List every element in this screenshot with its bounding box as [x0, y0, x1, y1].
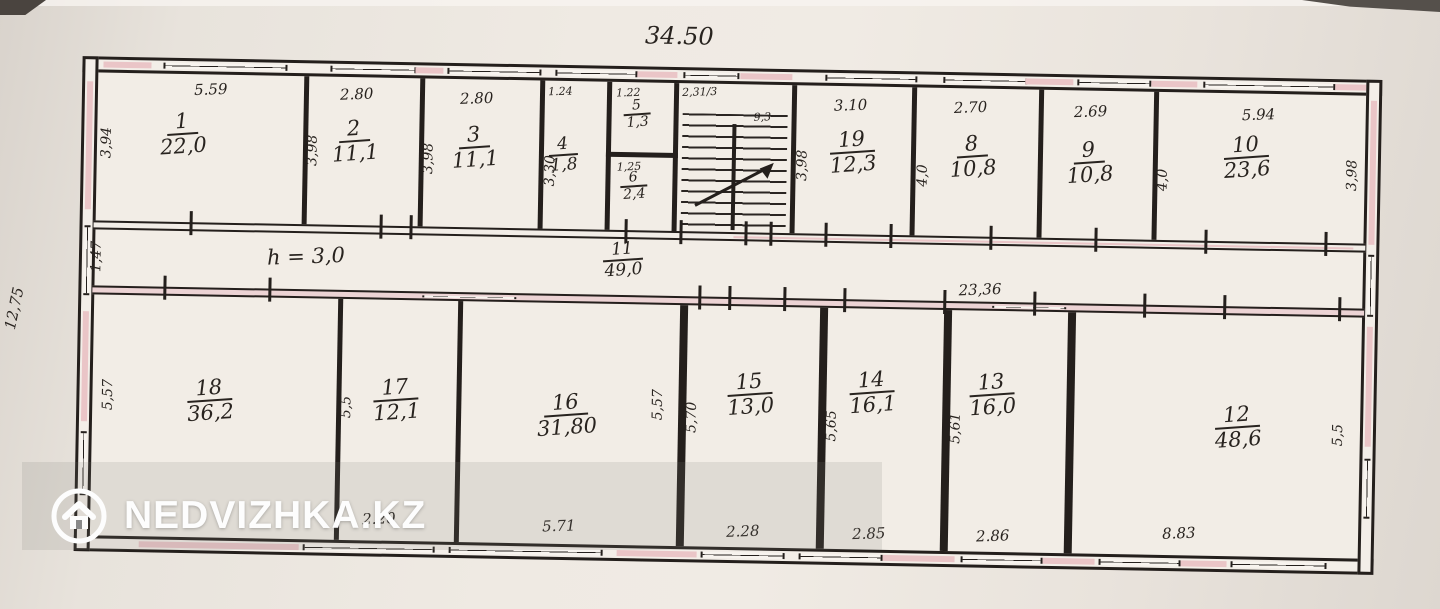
width-dim: 1.24 — [548, 84, 573, 98]
wall-segment — [1180, 560, 1226, 567]
ceiling-height-note: h = 3,0 — [267, 243, 346, 270]
door-tick — [1223, 295, 1226, 319]
scanned-floorplan-photo: 34.50 12,75 — [0, 0, 1440, 609]
wall-segment — [617, 550, 697, 557]
width-dim: 2.69 — [1074, 102, 1108, 121]
window-marker — [825, 75, 917, 83]
door-tick — [679, 220, 682, 244]
side-dim: 3,98 — [283, 142, 343, 159]
window-marker — [447, 68, 541, 76]
room-15-label: 15 13,0 — [725, 369, 775, 420]
width-dim: 1.22 — [616, 86, 641, 100]
room-18-label: 18 36,2 — [185, 375, 235, 426]
wall-segment — [637, 71, 677, 78]
side-dim: 3,98 — [1323, 167, 1383, 184]
room-16-label: 16 31,80 — [535, 389, 598, 441]
side-dim: 5,5 — [1308, 427, 1368, 444]
stair-area-note: 9,3 — [753, 110, 771, 124]
door-tick — [824, 223, 827, 247]
wall-segment — [1043, 558, 1095, 565]
side-dim: 5,65 — [802, 417, 862, 434]
width-dim: 3.10 — [834, 96, 868, 115]
door-tick — [189, 211, 192, 235]
room-8-label: 8 10,8 — [947, 131, 997, 182]
side-dim: 5,5 — [316, 398, 376, 415]
side-dim: 4,0 — [892, 167, 952, 184]
window-marker — [555, 70, 637, 78]
window-marker — [330, 66, 416, 74]
room-17-label: 17 12,1 — [371, 374, 421, 425]
stair-width-dim: 2,31/3 — [682, 85, 718, 99]
door-tick — [409, 215, 412, 239]
width-dim: 5.59 — [194, 80, 228, 99]
window-marker — [943, 77, 1027, 85]
house-icon — [50, 487, 108, 545]
corridor-right-dim: 23,36 — [958, 280, 1002, 299]
door-tick — [163, 276, 166, 300]
room-9-label: 9 10,8 — [1064, 137, 1114, 188]
watermark-text: NEDVIZHKA.KZ — [124, 494, 426, 538]
window-marker — [1098, 559, 1180, 567]
window-marker — [799, 553, 883, 561]
watermark: NEDVIZHKA.KZ — [50, 487, 426, 545]
door-tick — [1338, 297, 1341, 321]
photo-corner-artifact — [0, 0, 46, 15]
window-marker — [961, 556, 1043, 564]
window-marker — [1363, 459, 1370, 519]
window-marker — [163, 63, 287, 71]
side-dim: 3,98 — [399, 150, 459, 167]
width-dim: 8.83 — [1162, 524, 1196, 543]
door-tick — [1094, 228, 1097, 252]
door-tick — [783, 287, 786, 311]
room-12-label: 12 48,6 — [1212, 402, 1262, 453]
door-tick — [769, 222, 772, 246]
side-dim: 5,57 — [78, 386, 138, 403]
side-dim: 3,94 — [77, 134, 137, 151]
door-tick — [843, 288, 846, 312]
window-marker — [683, 72, 739, 79]
window-marker — [701, 552, 785, 560]
wall-segment — [81, 311, 89, 421]
room-10-label: 10 23,6 — [1221, 132, 1271, 183]
photo-edge — [0, 0, 1440, 6]
door-tick — [1033, 292, 1036, 316]
wall-segment — [415, 67, 443, 74]
room-1-label: 1 22,0 — [158, 108, 208, 159]
partition-wall — [606, 152, 678, 158]
door-tick — [698, 285, 701, 309]
overall-height-dim: 12,75 — [0, 269, 32, 332]
door-tick — [943, 290, 946, 314]
width-dim: 2.86 — [976, 526, 1010, 545]
door-tick — [379, 215, 382, 239]
side-dim: 3,30 — [520, 162, 580, 179]
partition-wall — [1151, 92, 1159, 240]
room-5-label: 5 1,3 — [623, 97, 652, 132]
window-marker — [422, 295, 516, 299]
corridor-11-label: 11 49,0 — [602, 239, 644, 281]
window-marker — [1203, 82, 1335, 90]
door-tick — [1143, 294, 1146, 318]
width-dim: 1,25 — [616, 160, 641, 174]
window-marker — [1230, 561, 1326, 569]
window-marker — [992, 305, 1066, 308]
side-dim: 5,70 — [662, 409, 722, 426]
width-dim: 2.80 — [460, 89, 494, 108]
partition-wall — [1036, 90, 1044, 238]
door-tick — [1324, 232, 1327, 256]
width-dim: 5.94 — [1241, 105, 1275, 124]
window-marker — [1077, 79, 1151, 86]
door-tick — [889, 224, 892, 248]
wall-segment — [1025, 78, 1073, 85]
wall-segment — [103, 62, 151, 69]
window-marker — [1367, 255, 1374, 317]
room-2-label: 2 11,1 — [330, 116, 380, 167]
wall-segment — [1151, 81, 1197, 88]
wall-segment — [883, 555, 955, 562]
overall-width-dim: 34.50 — [645, 21, 714, 50]
door-tick — [989, 226, 992, 250]
side-dim: 4,0 — [1132, 171, 1192, 188]
side-dim: 5,61 — [926, 420, 986, 437]
room-6-label: 6 2,4 — [619, 169, 648, 204]
room-13-label: 13 16,0 — [967, 369, 1017, 420]
partition-wall — [1064, 312, 1076, 553]
wall-segment — [740, 73, 792, 80]
exterior-wall-right — [1357, 80, 1382, 575]
width-dim: 2.70 — [954, 98, 988, 117]
door-tick — [1204, 230, 1207, 254]
room-14-label: 14 16,1 — [847, 367, 897, 418]
side-dim: 3,98 — [773, 157, 833, 174]
corridor-left-dim: 1,47 — [67, 248, 127, 265]
door-tick — [728, 286, 731, 310]
door-tick — [268, 278, 271, 302]
door-tick — [744, 221, 747, 245]
width-dim: 2.80 — [340, 85, 374, 104]
partition-wall — [909, 87, 917, 235]
room-19-label: 19 12,3 — [827, 127, 877, 178]
